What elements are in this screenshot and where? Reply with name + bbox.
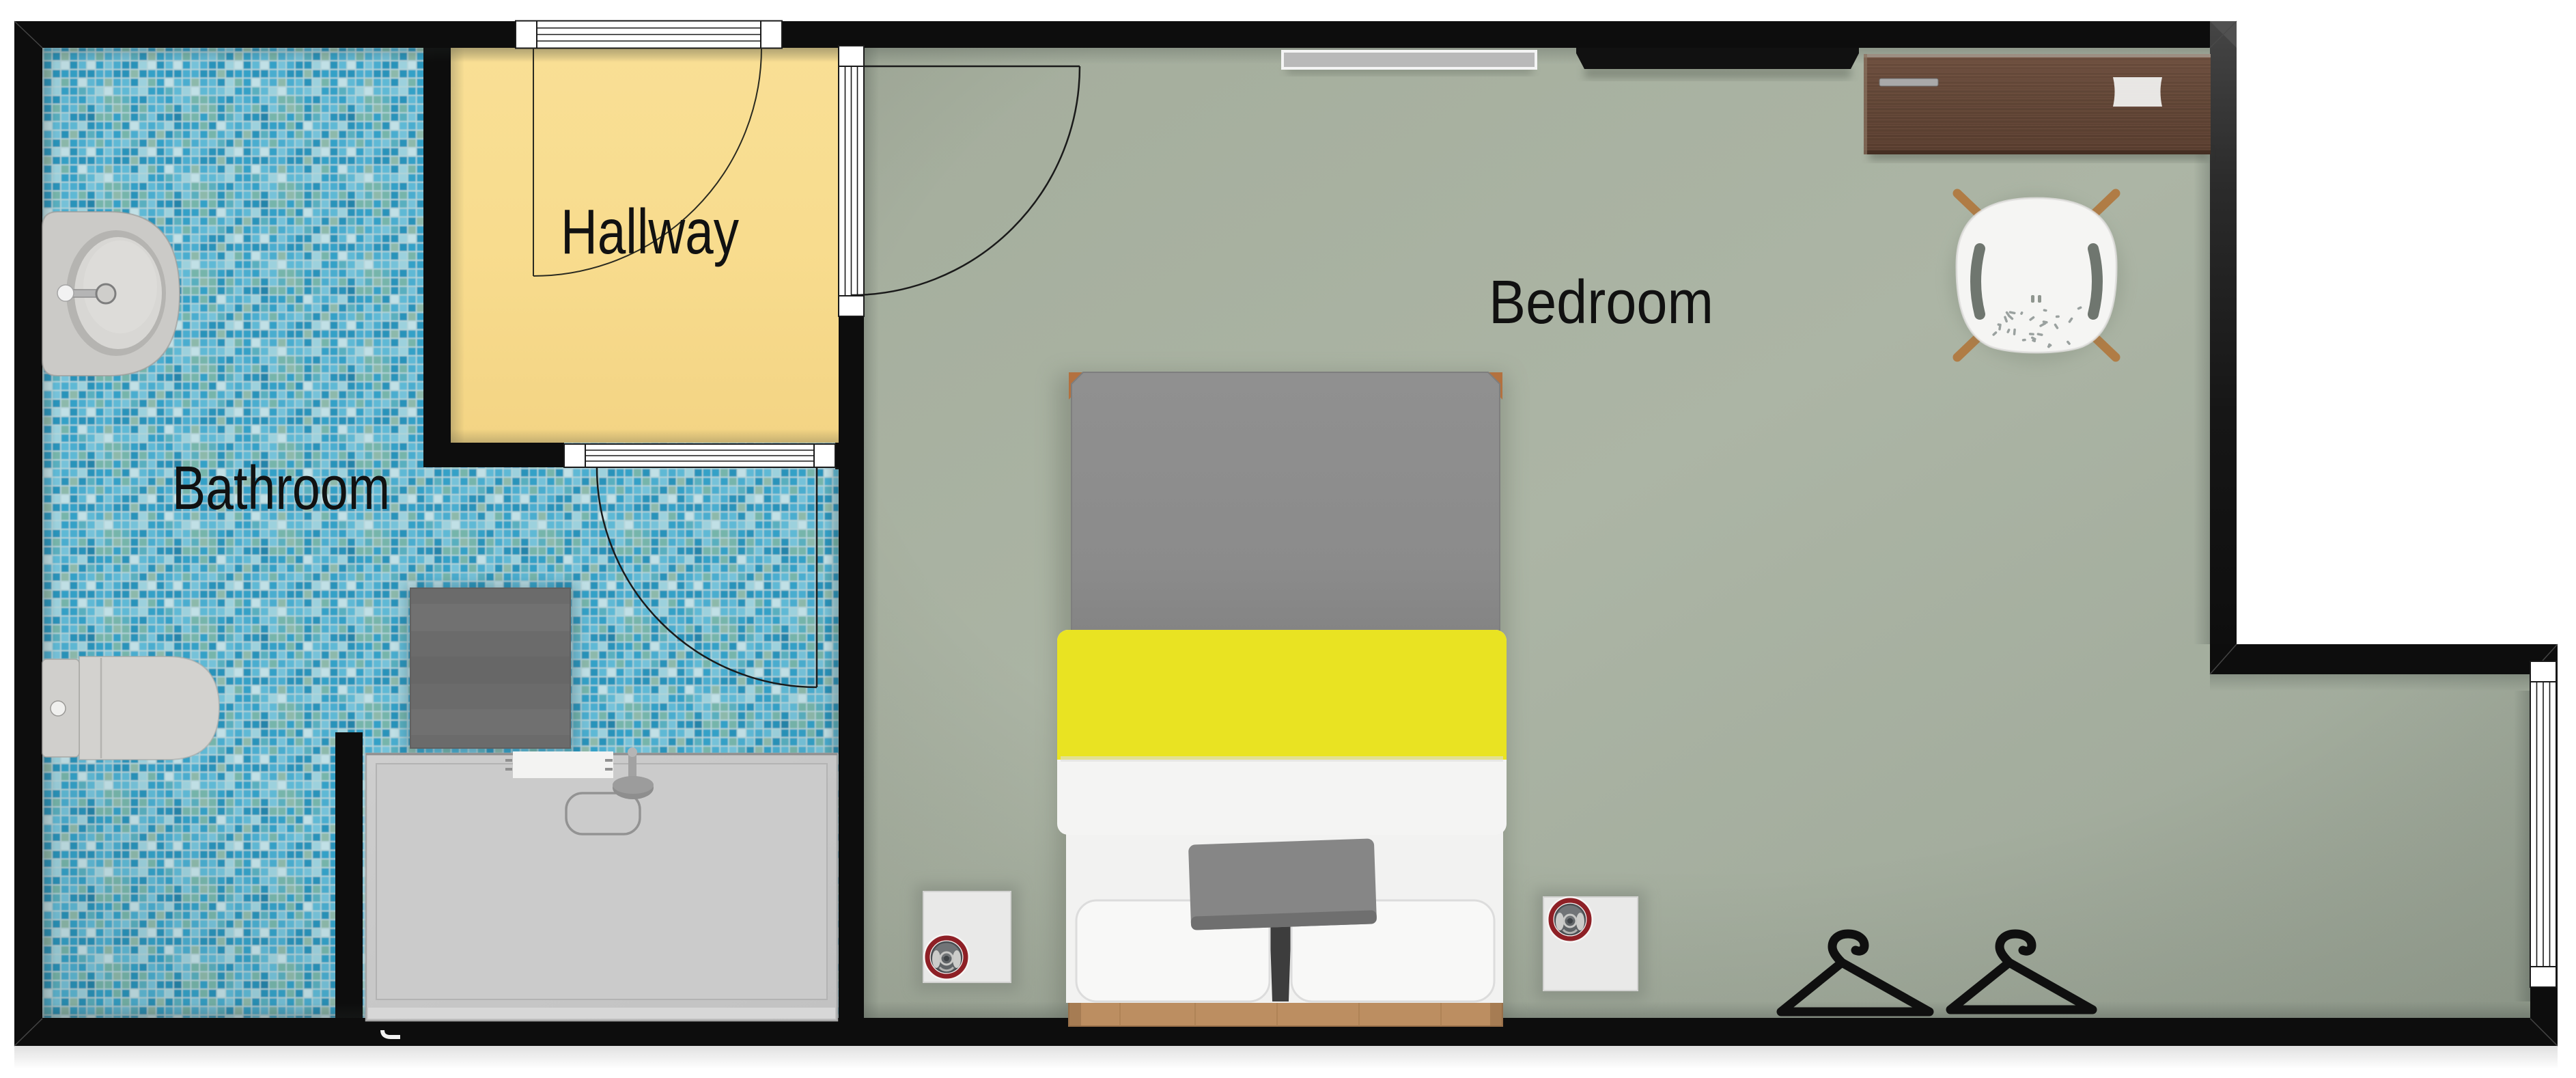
svg-text:Bedroom: Bedroom (1489, 268, 1713, 337)
svg-text:Bathroom: Bathroom (172, 454, 390, 523)
svg-text:Hallway: Hallway (561, 196, 739, 267)
